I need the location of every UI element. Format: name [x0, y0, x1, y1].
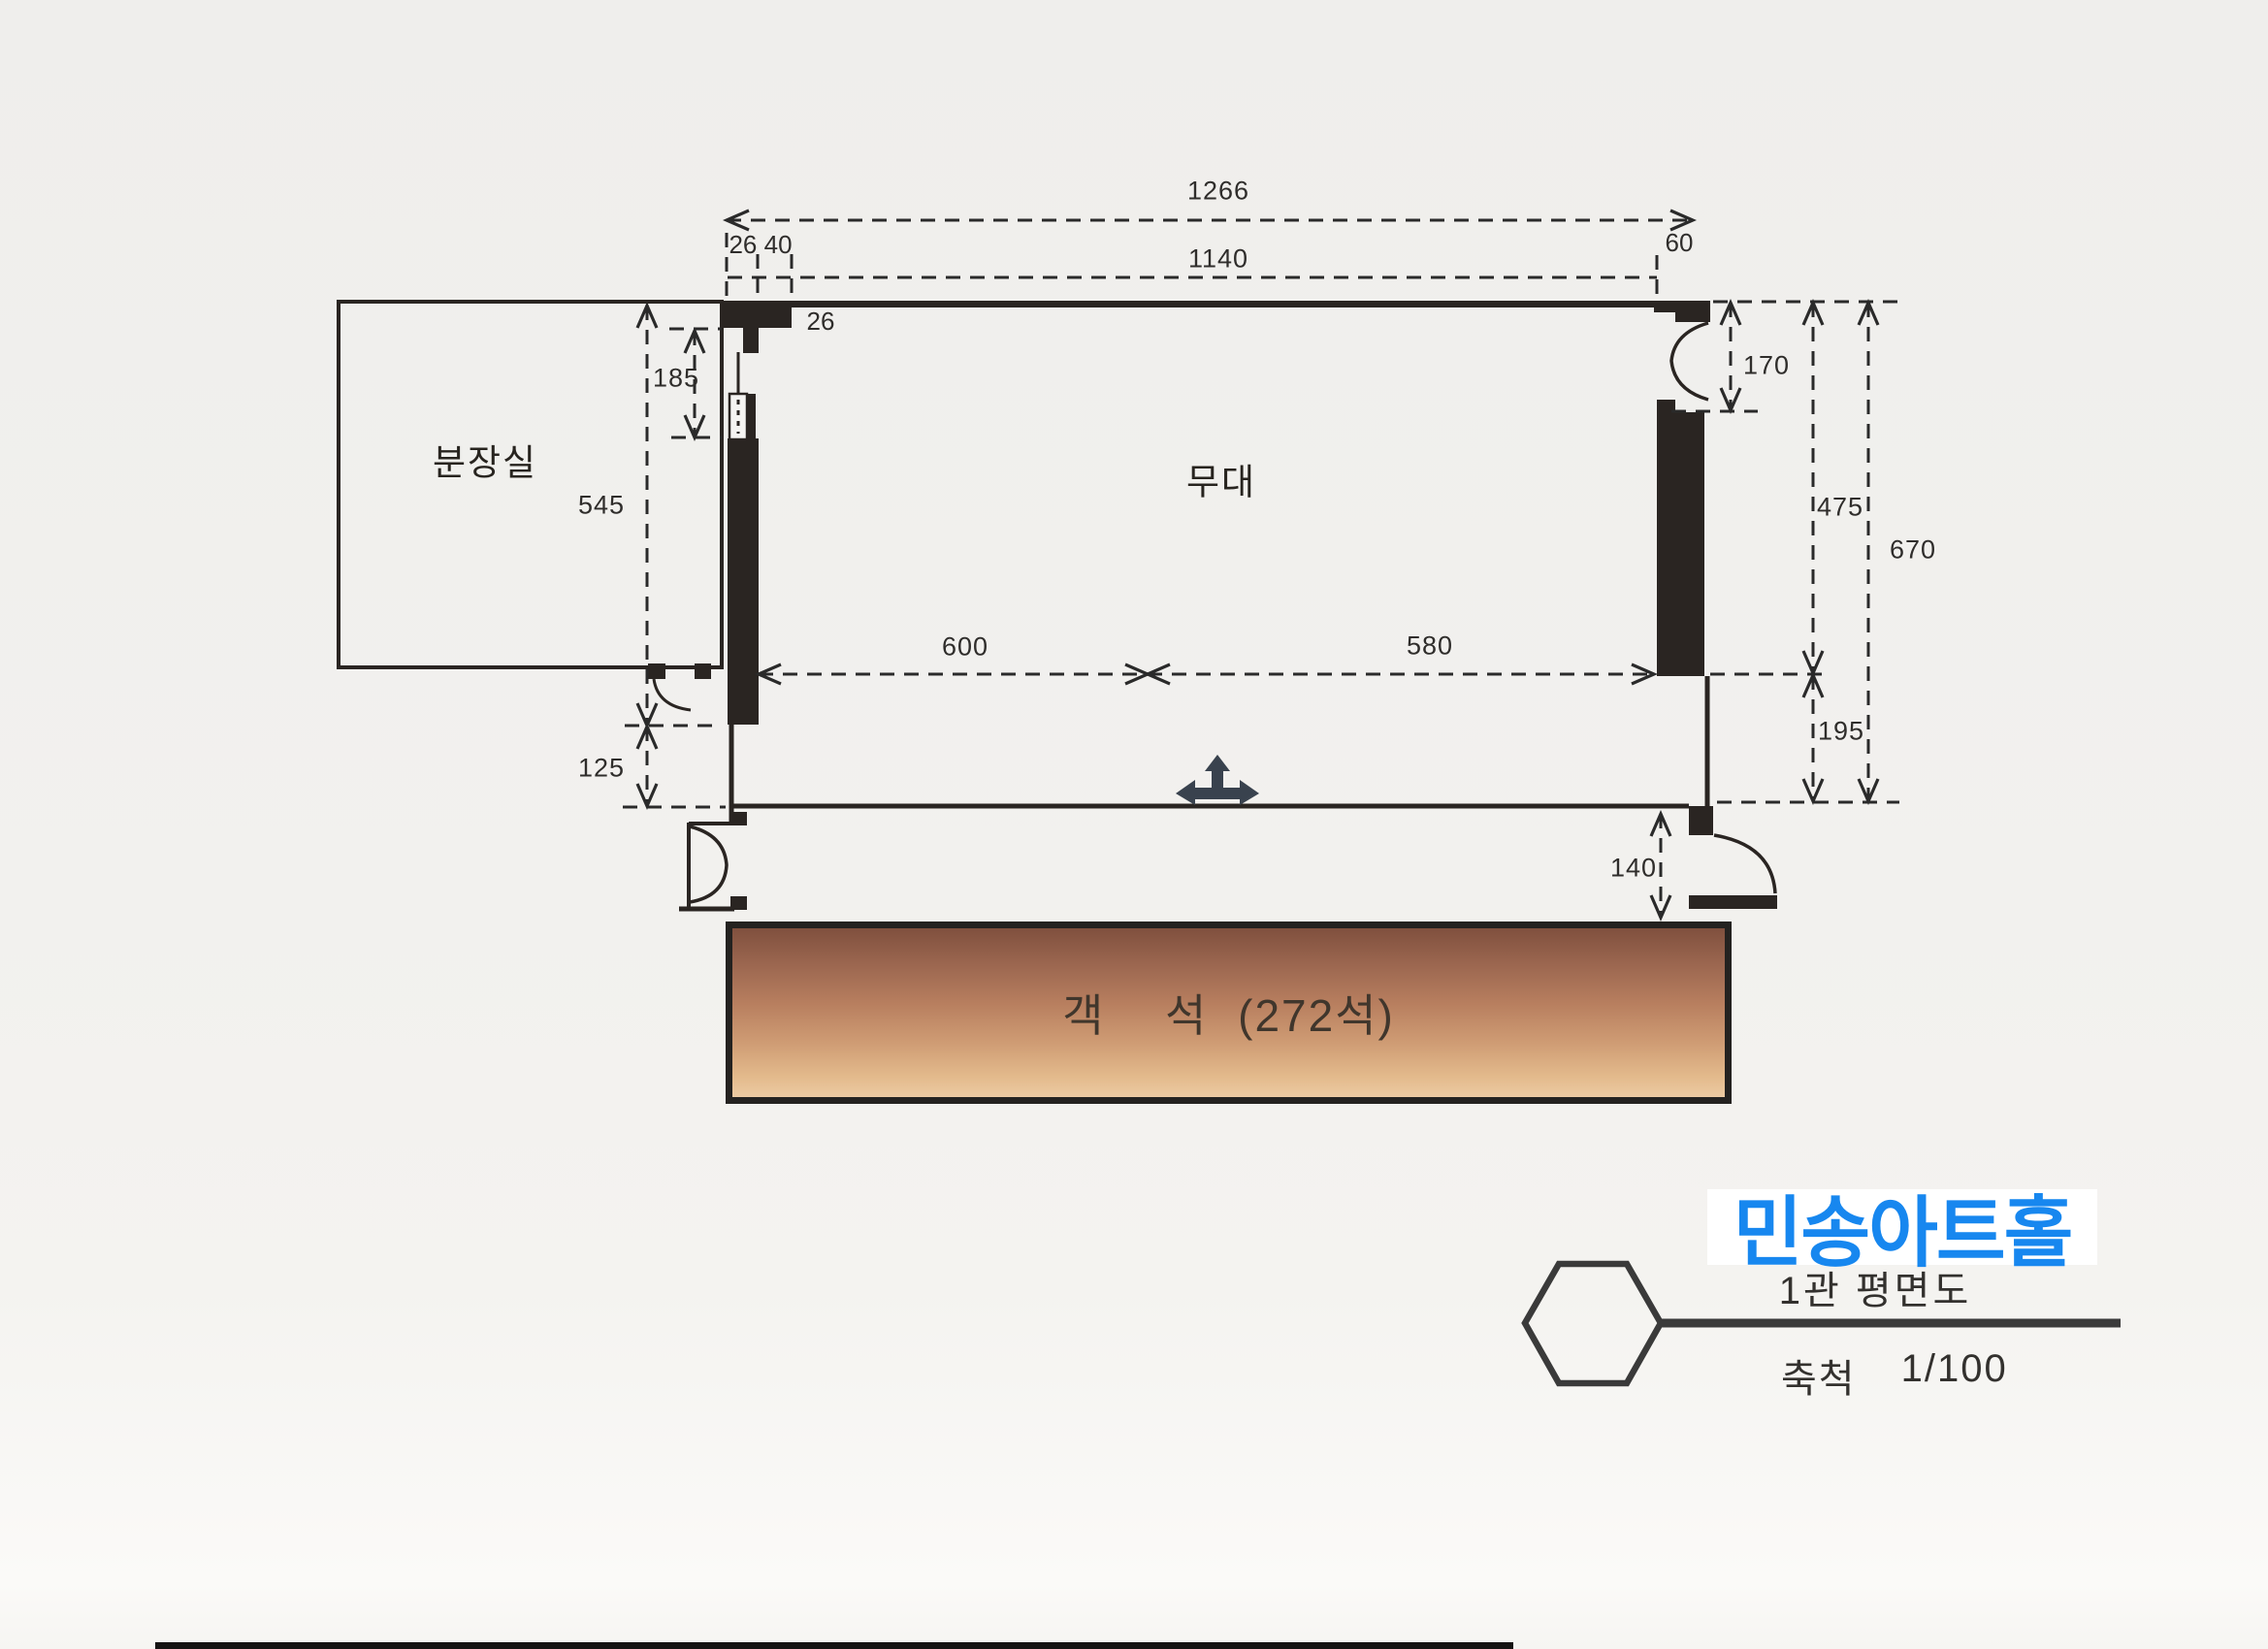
- seating-label: 객 석 (272석): [1062, 981, 1395, 1045]
- scan-edge-bar: [155, 1642, 1513, 1649]
- dim-1266-label: 1266: [1187, 178, 1249, 205]
- title-highlight-box: 민송아트홀: [1707, 1189, 2097, 1265]
- dim-545-label: 545: [578, 493, 625, 519]
- scale-value: 1/100: [1901, 1347, 2008, 1404]
- top-left-wall-block: [722, 301, 792, 353]
- left-entry-frame: [679, 812, 747, 910]
- stage-left-wall: [728, 438, 759, 725]
- right-entry-top-jamb: [1689, 806, 1713, 835]
- right-entry-door-swing: [1714, 835, 1775, 893]
- dim-26-wall-label: 26: [807, 308, 835, 334]
- dim-580-label: 580: [1407, 633, 1453, 660]
- dim-185-label: 185: [653, 366, 699, 392]
- stage-direction-icon: [1176, 755, 1259, 805]
- stage-top-wall: [722, 301, 1710, 307]
- stage-right-wall: [1657, 412, 1704, 676]
- dim-1140-label: 1140: [1188, 246, 1248, 273]
- left-entry-door-swing: [690, 826, 727, 902]
- dim-600-label: 600: [942, 634, 988, 661]
- dressing-room-label: 분장실: [433, 445, 537, 481]
- dim-26-40-label: 26 40: [729, 232, 792, 257]
- dressing-door-left-jamb: [648, 663, 665, 679]
- left-wall-door-leaf: [729, 352, 756, 439]
- dim-670-label: 670: [1890, 537, 1936, 564]
- dim-195-label: 195: [1818, 719, 1864, 745]
- door-swings: [654, 323, 1775, 902]
- right-entry-bottom-jamb: [1689, 895, 1777, 909]
- dressing-door-right-jamb: [695, 663, 711, 679]
- scale-row: 축척 1/100: [1781, 1347, 2008, 1404]
- dressing-room-outline: [339, 302, 722, 667]
- walls: [339, 301, 1777, 910]
- dim-125-label: 125: [578, 756, 625, 782]
- seating-area: 객 석 (272석): [726, 921, 1732, 1104]
- dressing-door-swing: [654, 679, 691, 710]
- dim-475-label: 475: [1817, 495, 1863, 521]
- stage-label: 무대: [1186, 465, 1256, 501]
- scale-label: 축척: [1781, 1347, 1857, 1404]
- dim-60-label: 60: [1666, 230, 1694, 255]
- drawing-title: 1관 평면도: [1779, 1272, 1972, 1310]
- dim-140-label: 140: [1610, 856, 1657, 882]
- hall-title: 민송아트홀: [1733, 1172, 2072, 1282]
- floor-plan-page: 1266 1140 26 40 60 26 185 545 170 475 67…: [0, 0, 2268, 1649]
- dim-170-label: 170: [1743, 353, 1790, 379]
- hexagon-icon: [1525, 1264, 1661, 1383]
- top-right-wall-block: [1654, 301, 1710, 322]
- stage-right-door-swing: [1671, 323, 1708, 400]
